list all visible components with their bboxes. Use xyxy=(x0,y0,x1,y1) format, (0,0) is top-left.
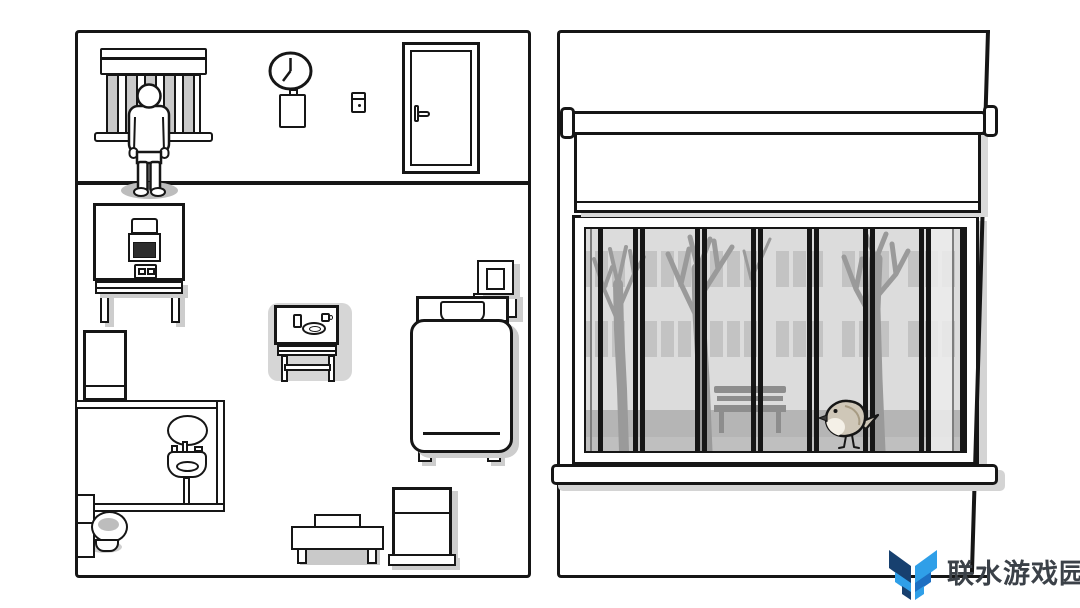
window-bar xyxy=(919,229,924,451)
nightstand[interactable] xyxy=(477,260,514,295)
watermark: 联水游戏园 xyxy=(885,548,1080,600)
window-bar xyxy=(960,229,965,451)
switch-line xyxy=(353,98,364,100)
machine-lid[interactable] xyxy=(131,218,158,234)
blind-valance xyxy=(100,48,207,75)
cabinet-line xyxy=(86,385,124,387)
plate[interactable] xyxy=(302,322,326,335)
window-bar xyxy=(758,229,763,451)
cabinet-body xyxy=(392,487,452,563)
book-on-nightstand[interactable] xyxy=(486,268,505,290)
big-window[interactable] xyxy=(572,215,979,465)
machine-screen xyxy=(133,242,156,258)
button-cell xyxy=(138,268,146,275)
glass[interactable] xyxy=(293,314,302,328)
window-bar-thin xyxy=(952,229,954,451)
sink-pedestal xyxy=(183,477,190,505)
plate-center xyxy=(309,326,321,332)
valance-line xyxy=(102,57,205,60)
window-panel xyxy=(557,30,990,578)
cabinet-base xyxy=(388,554,456,566)
park-bench-leg xyxy=(719,412,724,433)
blanket-line xyxy=(423,432,500,435)
window-bar xyxy=(695,229,700,451)
clipboard[interactable] xyxy=(279,94,306,128)
door[interactable] xyxy=(402,42,480,174)
window-glass xyxy=(584,227,967,453)
patient-figure[interactable] xyxy=(114,73,184,198)
bench-top xyxy=(291,526,384,550)
game-screen: 联水游戏园 xyxy=(0,0,1080,608)
sink-basin xyxy=(167,451,207,478)
chevron-m-logo-icon xyxy=(885,548,941,600)
bird[interactable] xyxy=(818,395,882,451)
apron-line xyxy=(97,287,181,289)
door-panel xyxy=(410,50,472,166)
blind-rod[interactable] xyxy=(565,111,986,135)
roller-blind[interactable] xyxy=(574,131,981,213)
watermark-text: 联水游戏园 xyxy=(947,548,1080,600)
toilet-seat xyxy=(98,518,119,531)
window-bar xyxy=(702,229,707,451)
blind-hem-line xyxy=(577,201,978,204)
bathroom-wall-right xyxy=(216,400,225,512)
table-apron xyxy=(277,345,337,356)
bench-leg xyxy=(297,548,307,564)
light-switch[interactable] xyxy=(351,92,366,113)
table-crossbar xyxy=(284,364,331,371)
storage-cabinet[interactable] xyxy=(83,330,127,401)
cup-handle xyxy=(329,315,333,320)
blind-rod-cap xyxy=(560,107,575,139)
wall-clock[interactable] xyxy=(267,50,314,92)
door-handle[interactable] xyxy=(417,111,430,117)
desk-leg xyxy=(171,292,180,323)
machine-body[interactable] xyxy=(128,233,161,262)
window-bar-thin xyxy=(590,229,592,451)
toilet-base xyxy=(95,539,119,552)
window-sill xyxy=(551,464,998,485)
window-bar xyxy=(598,229,603,451)
window-bar xyxy=(633,229,638,451)
cabinet-line xyxy=(395,512,449,514)
park-bench-leg xyxy=(776,412,781,433)
park-bench xyxy=(714,386,786,393)
window-bar xyxy=(807,229,812,451)
window-bar xyxy=(751,229,756,451)
button-cell xyxy=(147,268,155,275)
window-bar xyxy=(640,229,645,451)
apron-line xyxy=(279,350,335,352)
sink-bowl xyxy=(176,461,199,472)
bench-leg xyxy=(367,548,377,564)
desk-leg xyxy=(100,292,109,323)
park-bench-slat xyxy=(717,396,783,401)
switch-dot xyxy=(358,104,361,107)
desk-apron xyxy=(95,281,183,294)
machine-buttons[interactable] xyxy=(134,264,157,279)
window-bar xyxy=(926,229,931,451)
room-panel xyxy=(75,30,531,578)
bed-mattress[interactable] xyxy=(410,319,513,453)
blind-rod-cap xyxy=(983,105,998,137)
light-band xyxy=(928,229,954,451)
park-bench-seat xyxy=(714,405,786,412)
bathroom-wall-top xyxy=(75,400,225,409)
